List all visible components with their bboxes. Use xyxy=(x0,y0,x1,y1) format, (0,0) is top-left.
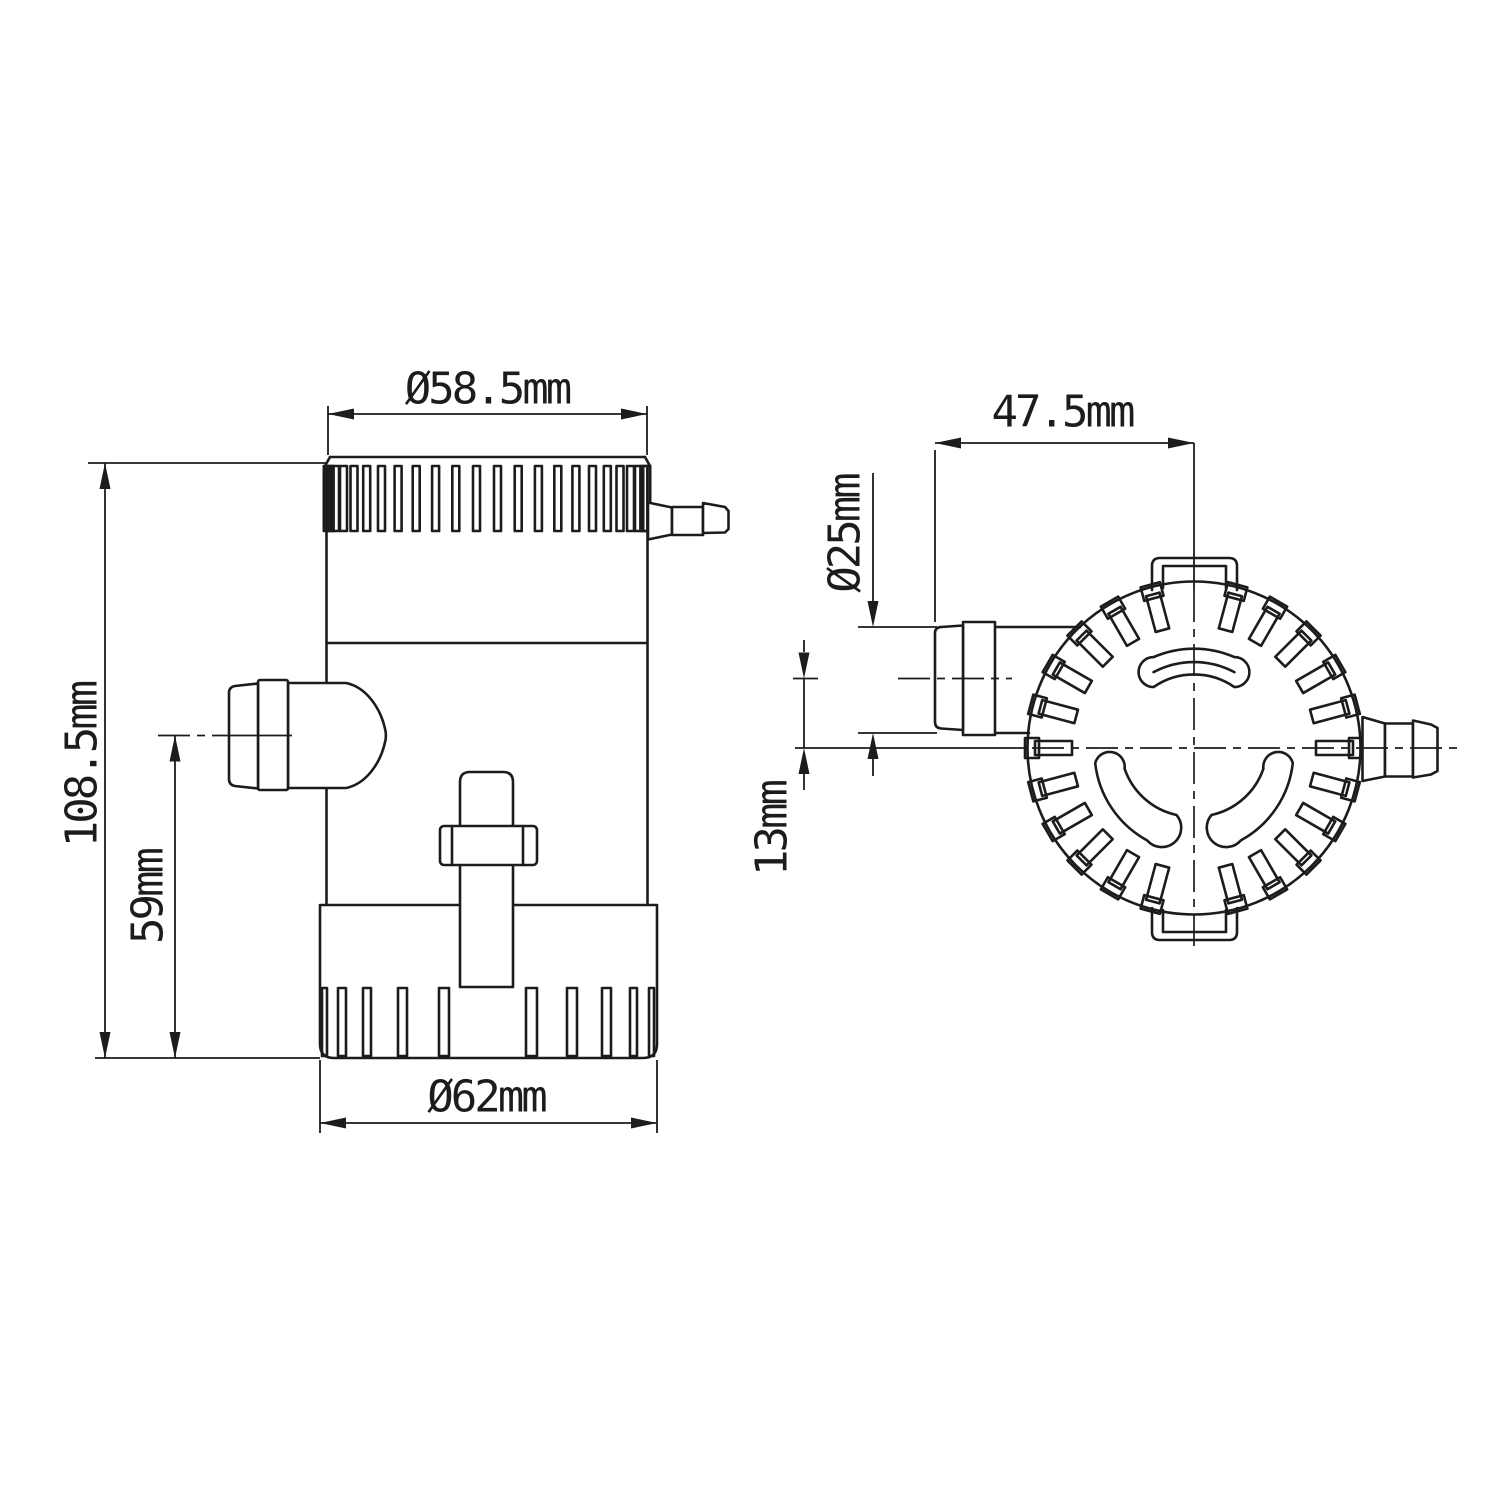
dim-label-outlet-length: 47.5mm xyxy=(992,387,1134,438)
drawing-canvas: 108.5mm 59mm Ø58.5mm Ø62mm xyxy=(0,0,1500,1500)
dim-label-overall-height: 108.5mm xyxy=(57,681,108,847)
dim-label-base-diameter: Ø62mm xyxy=(427,1072,546,1123)
side-view: 108.5mm 59mm Ø58.5mm Ø62mm xyxy=(57,364,729,1134)
outlet-port xyxy=(228,680,386,790)
side-barb-nozzle xyxy=(1363,717,1438,781)
dim-base-diameter: Ø62mm xyxy=(320,1060,657,1133)
technical-drawing: 108.5mm 59mm Ø58.5mm Ø62mm xyxy=(0,0,1500,1500)
vent-barb-nozzle xyxy=(648,503,729,540)
top-cap-ribs xyxy=(324,457,650,531)
top-view: 47.5mm Ø25mm 13mm xyxy=(747,387,1459,953)
dim-label-outlet-height: 59mm xyxy=(123,849,174,944)
dim-label-outlet-offset: 13mm xyxy=(747,781,798,876)
dim-label-outlet-diameter: Ø25mm xyxy=(820,474,871,593)
dim-outlet-height: 59mm xyxy=(123,736,229,1059)
dim-top-diameter: Ø58.5mm xyxy=(328,364,647,456)
dim-label-top-diameter: Ø58.5mm xyxy=(405,364,571,415)
dim-outlet-diameter: Ø25mm xyxy=(820,473,938,776)
